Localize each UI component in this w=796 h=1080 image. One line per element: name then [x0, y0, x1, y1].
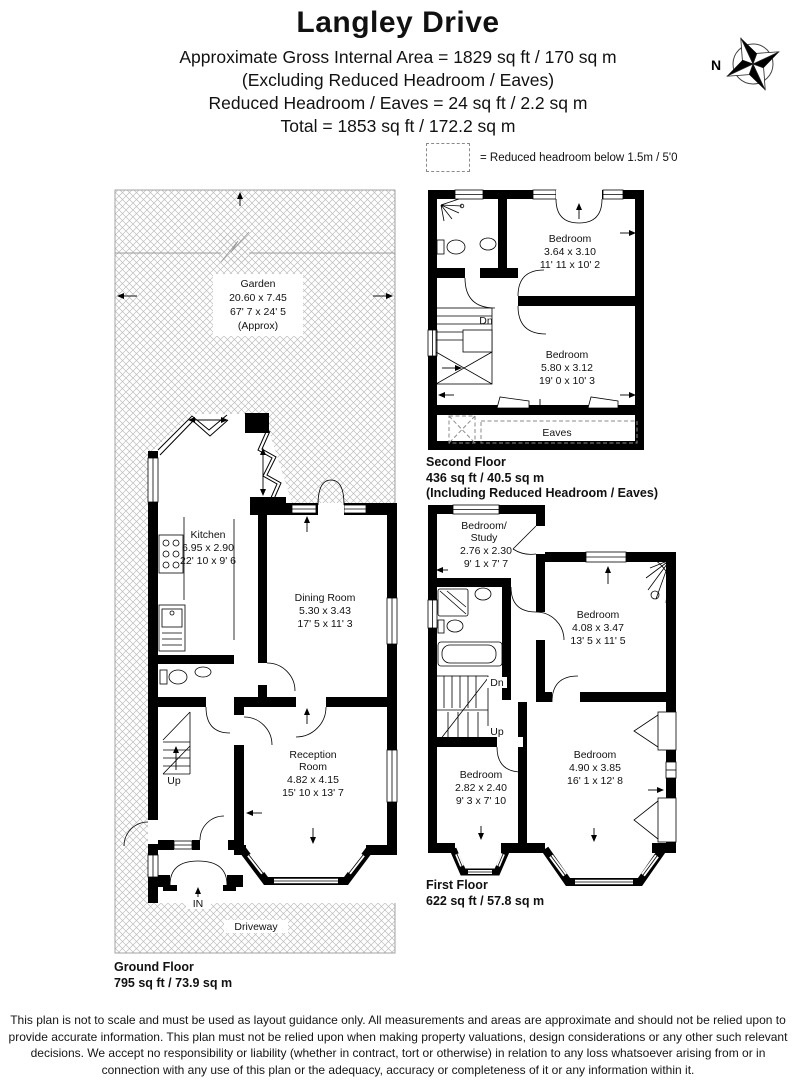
legend: = Reduced headroom below 1.5m / 5'0: [426, 143, 678, 172]
kitchen-label: Kitchen: [190, 529, 225, 541]
ground-floor-plan: Garden 20.60 x 7.45 67' 7 x 24' 5 (Appro…: [110, 186, 402, 958]
first-floor-name: First Floor: [426, 878, 544, 894]
first-floor-area: 622 sq ft / 57.8 sq m: [426, 894, 544, 910]
bedroom-right-metric: 4.08 x 3.47: [572, 622, 624, 634]
dining-label: Dining Room: [295, 592, 356, 604]
reception-label-2: Room: [299, 761, 327, 773]
in-label: IN: [193, 898, 204, 910]
floorplan-page: Langley Drive Approximate Gross Internal…: [0, 0, 796, 1080]
compass-north-label: N: [711, 57, 721, 73]
bedroom-right-imperial: 13' 5 x 11' 5: [570, 635, 625, 647]
bedroom-bay-label: Bedroom: [574, 749, 617, 761]
study-label-1: Bedroom/: [461, 520, 507, 532]
bedroom-main-imperial: 19' 0 x 10' 3: [539, 375, 595, 387]
area-line-2: (Excluding Reduced Headroom / Eaves): [0, 69, 796, 92]
disclaimer: This plan is not to scale and must be us…: [6, 1012, 790, 1078]
study-metric: 2.76 x 2.30: [460, 545, 512, 557]
dining-imperial: 17' 5 x 11' 3: [297, 618, 352, 630]
garden-metric: 20.60 x 7.45: [229, 292, 287, 304]
bedroom-top-metric: 3.64 x 3.10: [544, 246, 596, 258]
dining-metric: 5.30 x 3.43: [299, 605, 351, 617]
bedroom-bay-imperial: 16' 1 x 12' 8: [567, 775, 623, 787]
ground-floor-area: 795 sq ft / 73.9 sq m: [114, 976, 232, 992]
second-floor-label: Second Floor 436 sq ft / 40.5 sq m (Incl…: [426, 455, 658, 502]
compass-icon: N: [703, 26, 793, 104]
header: Langley Drive Approximate Gross Internal…: [0, 6, 796, 138]
driveway-label: Driveway: [234, 921, 278, 933]
garden-imperial: 67' 7 x 24' 5: [230, 306, 286, 318]
garden-label: Garden: [240, 278, 275, 290]
bedroom-top-label: Bedroom: [549, 233, 592, 245]
legend-label: = Reduced headroom below 1.5m / 5'0: [480, 152, 678, 164]
area-line-4: Total = 1853 sq ft / 172.2 sq m: [0, 115, 796, 138]
ground-floor-label: Ground Floor 795 sq ft / 73.9 sq m: [114, 960, 232, 991]
bedroom-small-metric: 2.82 x 2.40: [455, 782, 507, 794]
bedroom-top-imperial: 11' 11 x 10' 2: [540, 259, 600, 271]
area-line-3: Reduced Headroom / Eaves = 24 sq ft / 2.…: [0, 92, 796, 115]
bedroom-small-label: Bedroom: [460, 769, 503, 781]
dn-label: Dn: [490, 677, 504, 689]
bedroom-main-metric: 5.80 x 3.12: [541, 362, 593, 374]
bedroom-main-label: Bedroom: [546, 349, 589, 361]
first-floor-plan: Bedroom/ Study 2.76 x 2.30 9' 1 x 7' 7 B…: [418, 498, 686, 900]
up-label: Up: [167, 775, 181, 787]
second-floor-plan: Bedroom 3.64 x 3.10 11' 11 x 10' 2 Bedro…: [418, 186, 650, 452]
area-line-1: Approximate Gross Internal Area = 1829 s…: [0, 46, 796, 69]
first-floor-label: First Floor 622 sq ft / 57.8 sq m: [426, 878, 544, 909]
garden-note: (Approx): [238, 320, 278, 332]
second-floor-name: Second Floor: [426, 455, 658, 471]
kitchen-metric: 6.95 x 2.90: [182, 542, 234, 554]
bedroom-small-imperial: 9' 3 x 7' 10: [456, 795, 506, 807]
kitchen-imperial: 22' 10 x 9' 6: [180, 555, 236, 567]
up-label: Up: [490, 726, 504, 738]
study-imperial: 9' 1 x 7' 7: [464, 558, 508, 570]
reception-metric: 4.82 x 4.15: [287, 774, 339, 786]
second-floor-area: 436 sq ft / 40.5 sq m: [426, 471, 658, 487]
reduced-headroom-swatch: [426, 143, 470, 172]
page-title: Langley Drive: [0, 6, 796, 40]
reception-imperial: 15' 10 x 13' 7: [282, 787, 344, 799]
bedroom-right-label: Bedroom: [577, 609, 620, 621]
reception-label-1: Reception: [289, 749, 336, 761]
bedroom-bay-metric: 4.90 x 3.85: [569, 762, 621, 774]
dn-label: Dn: [479, 315, 493, 327]
eaves-label: Eaves: [542, 427, 571, 439]
ground-floor-name: Ground Floor: [114, 960, 232, 976]
study-label-2: Study: [471, 532, 499, 544]
